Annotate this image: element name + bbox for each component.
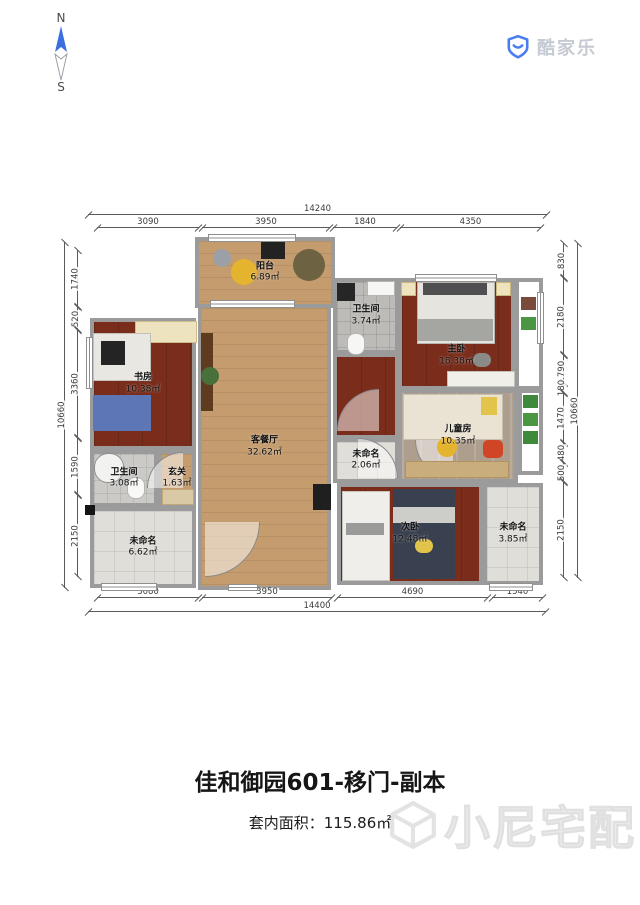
plan-title: 佳和御园601-移门-副本	[0, 763, 640, 797]
room-unnamed-br: 未命名3.85㎡	[483, 483, 543, 585]
furniture-desk-kids	[405, 461, 509, 478]
window	[210, 300, 295, 308]
dimension-right-500: 500	[563, 463, 564, 482]
furniture-chairs-second	[346, 523, 384, 535]
furniture-monitor-study	[101, 341, 125, 365]
dimension-label: 3090	[136, 218, 160, 227]
room-label-master: 主卧18.38㎡	[402, 344, 511, 367]
dimension-left-2150: 2150	[77, 495, 78, 577]
dimension-label: 10660	[58, 400, 67, 429]
furniture-plant-master-right2	[521, 317, 536, 330]
compass: N S	[44, 12, 78, 94]
furniture-table-balcony	[231, 259, 257, 285]
window	[537, 292, 544, 344]
furniture-plant-master-right	[521, 297, 536, 310]
furniture-nightstand-right	[496, 282, 511, 296]
dimension-right-1470: 1470	[563, 393, 564, 443]
dimension-label: 14240	[303, 205, 332, 214]
kujiale-shield-icon	[505, 34, 531, 60]
furniture-bed-second	[393, 489, 455, 579]
dimension-top-1840: 1840	[333, 227, 397, 228]
dimension-label: 4690	[401, 588, 425, 597]
furniture-sofa-study	[93, 395, 151, 431]
dimension-label: 2150	[71, 524, 80, 548]
dimension-label: 790	[558, 360, 567, 378]
furniture-chair-red-kids	[483, 440, 503, 458]
furniture-tv-balcony	[261, 241, 285, 259]
window	[228, 584, 258, 591]
compass-needle-icon	[52, 25, 70, 81]
window	[489, 583, 533, 591]
furniture-pillows-master	[423, 283, 487, 295]
furniture-plant-strip-1	[523, 395, 538, 408]
furniture-pillow-second	[415, 539, 433, 553]
kujiale-logo-text: 酷家乐	[537, 34, 597, 60]
furniture-cabinet-living-right	[313, 484, 331, 510]
dimension-left-1590: 1590	[77, 438, 78, 495]
dimension-bottom-3950: 3950	[202, 597, 332, 598]
dimension-bottom-4690: 4690	[337, 597, 488, 598]
furniture-plant-strip-3	[523, 431, 538, 444]
dimension-label: 1840	[353, 218, 377, 227]
furniture-toilet-bath-top	[347, 333, 365, 355]
dimension-right-830: 830	[563, 243, 564, 278]
dimension-right-480: 480	[563, 443, 564, 463]
furniture-desks-second	[342, 491, 390, 581]
area-line: 套内面积：115.86㎡	[0, 812, 640, 833]
dimension-label: 4350	[459, 218, 483, 227]
compass-south-label: S	[44, 81, 78, 94]
dimension-left-520: 520	[77, 307, 78, 330]
dimension-label: 3950	[255, 588, 279, 597]
dimension-left-1740: 1740	[77, 250, 78, 307]
furniture-column-1	[85, 505, 95, 515]
dimension-bottom-3080: 3080	[97, 597, 199, 598]
dimension-label: 1740	[71, 267, 80, 291]
dimension-label: 1470	[557, 406, 566, 430]
window	[208, 234, 296, 242]
floor-plan: 阳台6.89㎡客餐厅32.62㎡卫生间3.74㎡主卧18.38㎡儿童房10.35…	[85, 237, 555, 590]
room-label-bath-top: 卫生间3.74㎡	[337, 304, 395, 327]
dimension-label: 830	[558, 251, 567, 269]
dimension-left-3360: 3360	[77, 330, 78, 438]
furniture-stool-yellow-kids	[437, 437, 457, 457]
dimension-left-10660: 10660	[64, 242, 65, 588]
dimension-right-2150: 2150	[563, 482, 564, 578]
room-unnamed-bl: 未命名6.62㎡	[90, 507, 196, 588]
dimension-label: 3950	[254, 218, 278, 227]
furniture-plant-strip-2	[523, 413, 538, 426]
furniture-pillow-kids	[481, 397, 497, 415]
furniture-sheet-second	[393, 507, 455, 523]
furniture-plant-balcony	[293, 249, 325, 281]
dimension-label: 3360	[71, 372, 80, 396]
compass-north-label: N	[44, 12, 78, 25]
furniture-dresser-master	[447, 371, 515, 387]
dimension-label: 520	[72, 309, 81, 327]
furniture-plant-living	[201, 367, 219, 385]
dimension-top-14240: 14240	[88, 214, 547, 215]
dimension-label: 2180	[557, 305, 566, 329]
window	[101, 583, 157, 591]
area-value: 115.86㎡	[324, 814, 392, 832]
room-label-unnamed-br: 未命名3.85㎡	[487, 522, 539, 545]
room-label-living: 客餐厅32.62㎡	[202, 435, 327, 458]
room-label-unnamed-bl: 未命名6.62㎡	[94, 536, 192, 559]
window	[415, 274, 497, 282]
furniture-cabinet-foyer	[162, 489, 194, 505]
dimension-label: 1590	[71, 455, 80, 479]
kujiale-logo: 酷家乐	[505, 34, 597, 60]
furniture-sink-bath-top	[367, 281, 395, 296]
area-prefix: 套内面积：	[249, 814, 324, 832]
furniture-washer-bath-top	[337, 283, 355, 301]
dimension-bottom-14400: 14400	[88, 611, 546, 612]
furniture-toilet-bath-left	[127, 477, 145, 499]
dimension-label: 10660	[571, 396, 580, 425]
dimension-top-3950: 3950	[202, 227, 330, 228]
furniture-blanket-master	[417, 319, 493, 341]
furniture-nightstand-left	[401, 282, 416, 296]
dimension-label: 2150	[557, 518, 566, 542]
dimension-top-3090: 3090	[97, 227, 199, 228]
dimension-right-2180: 2180	[563, 278, 564, 355]
dimension-bottom-1540: 1540	[492, 597, 543, 598]
dimension-right-10660: 10660	[577, 243, 578, 578]
furniture-chair-balcony	[213, 249, 231, 267]
furniture-chair-master	[473, 353, 491, 367]
window	[86, 337, 93, 389]
dimension-label: 14400	[302, 602, 331, 611]
furniture-shower-bath-left	[94, 453, 124, 483]
dimension-top-4350: 4350	[400, 227, 541, 228]
